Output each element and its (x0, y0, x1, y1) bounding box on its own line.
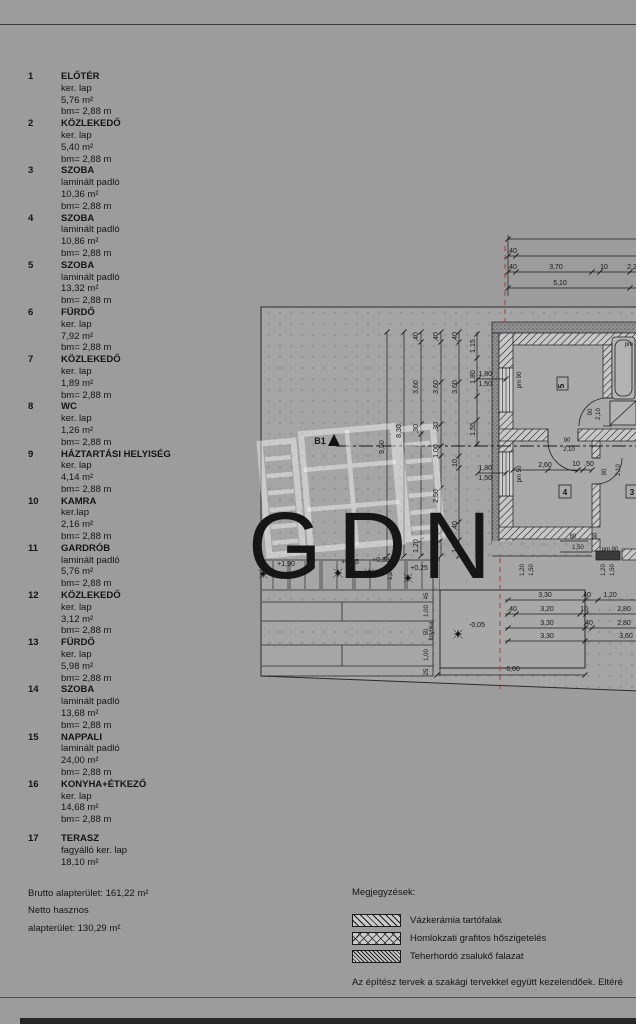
dim-label: 3,60 (413, 380, 420, 394)
room-height: bm= 2,88 m (61, 295, 253, 307)
room-name: HÁZTARTÁSI HELYISÉG (61, 449, 253, 461)
dim-label: pm (625, 342, 633, 348)
drawing-page: { "page": { "bottom_note": "Az építész t… (0, 0, 636, 1024)
dim-label: 4 (563, 488, 568, 497)
room-number: 5 (28, 260, 33, 272)
room-entry: 14 SZOBA laminált padló 13,68 m² bm= 2,8… (28, 684, 253, 731)
dim-label: ,40 (452, 521, 459, 531)
room-floor-type: laminált padló (61, 272, 253, 284)
wall-lower-hatch (622, 549, 636, 560)
room-number: 10 (28, 496, 39, 508)
dim-label: 10 (452, 459, 459, 467)
dim-label: 1,50 (478, 381, 492, 388)
room-floor-type: ker.lap (61, 507, 253, 519)
room-name: WC (61, 401, 253, 413)
room-entry: 4 SZOBA laminált padló 10,86 m² bm= 2,88… (28, 213, 253, 260)
room-entry: 11 GARDRÓB laminált padló 5,76 m² bm= 2,… (28, 543, 253, 590)
room-height: bm= 2,88 m (61, 437, 253, 449)
room-floor-type: laminált padló (61, 555, 253, 567)
disclaimer-note: Az építész tervek a szakági tervekkel eg… (352, 977, 623, 988)
spot-elevation-icon (365, 569, 374, 578)
dim-label: 50 (424, 628, 430, 635)
room-floor-type: ker. lap (61, 130, 253, 142)
wall-left-a (499, 333, 513, 368)
dim-label: 1,20 (520, 564, 526, 576)
dim-label: 3,30 (540, 620, 554, 627)
legend-row: Homlokzati grafitos hőszigetelés (352, 929, 546, 947)
dim-label: 8,30 (396, 424, 403, 438)
wall-mid-a (499, 429, 548, 441)
dim-label: ,30 (433, 422, 440, 432)
dim-label: 90 (593, 532, 599, 539)
net-area-label: Netto hasznos (28, 902, 148, 919)
legend-label: Homlokzati grafitos hőszigetelés (410, 933, 546, 944)
dim-label: 3,60 (433, 380, 440, 394)
room-name: GARDRÓB (61, 543, 253, 555)
dim-label: ,40 (583, 620, 593, 627)
dim-label: B1 (314, 436, 326, 446)
dim-label: +1,90 (277, 561, 295, 568)
room-name: SZOBA (61, 260, 253, 272)
dim-label: 2,80 (617, 620, 631, 627)
watermark-text: GDN (250, 493, 507, 599)
legend-label: Teherhordó zsalukő falazat (410, 951, 524, 962)
room-entry: 15 NAPPALI laminált padló 24,00 m² bm= 2… (28, 732, 253, 779)
room-entry: 3 SZOBA laminált padló 10,36 m² bm= 2,88… (28, 165, 253, 212)
dim-label: 10 (580, 606, 588, 613)
spot-elevation-icon (404, 574, 413, 583)
room-entry: 7 KÖZLEKEDŐ ker. lap 1,89 m² bm= 2,88 m (28, 354, 253, 401)
room-number: 15 (28, 732, 39, 744)
dim-label: 1,20 (603, 592, 617, 599)
dim-label: ,50 (584, 461, 594, 468)
dim-label: ,40 (433, 521, 440, 531)
dim-label: ,40 (452, 332, 459, 342)
dim-label: 2,2 (627, 264, 636, 271)
dim-label: +0,85 (341, 559, 359, 566)
dim-label: 10 (600, 264, 608, 271)
room-floor-type: fagyálló ker. lap (61, 845, 253, 857)
room-entry: 12 KÖZLEKEDŐ ker. lap 3,12 m² bm= 2,88 m (28, 590, 253, 637)
room-number: 8 (28, 401, 33, 413)
hatch-swatch-icon (352, 914, 401, 927)
dim-label: 3,60 (452, 380, 459, 394)
dim-label: 90 (588, 408, 594, 415)
room-area: 13,68 m² (61, 708, 253, 720)
room-area: 5,40 m² (61, 142, 253, 154)
insulation-top (492, 322, 636, 333)
dim-label: ,40 (413, 332, 420, 342)
room-area: 1,89 m² (61, 378, 253, 390)
dim-label: 1,80 (470, 370, 477, 384)
dim-label: 2,10 (563, 447, 575, 453)
notes-block: Megjegyzések: Vázkerámia tartófalak Homl… (352, 887, 546, 965)
dim-label: ,30 (413, 424, 420, 434)
room-height: bm= 2,88 m (61, 106, 253, 118)
dim-label: 1,15 (470, 339, 477, 353)
room-name: KÖZLEKEDŐ (61, 118, 253, 130)
dim-label: 3 (630, 488, 635, 497)
room-height: bm= 2,88 m (61, 578, 253, 590)
room-schedule: 1 ELŐTÉR ker. lap 5,76 m² bm= 2,88 m 2 K… (28, 71, 253, 826)
hatch-swatch-icon (352, 932, 401, 945)
room-area: 5,76 m² (61, 95, 253, 107)
terrace (440, 590, 585, 668)
dim-label: 1,20 (413, 539, 420, 553)
dim-label: 6,00 (506, 666, 520, 673)
gross-area: Brutto alapterület: 161,22 m² (28, 885, 148, 902)
dim-label: 2,10 (596, 408, 602, 420)
room-area: 2,16 m² (61, 519, 253, 531)
room-name: NAPPALI (61, 732, 253, 744)
room-area: 10,86 m² (61, 236, 253, 248)
room-name: KÖZLEKEDŐ (61, 354, 253, 366)
spot-elevation-icon (259, 570, 268, 579)
legend-row: Teherhordó zsalukő falazat (352, 947, 546, 965)
footer-bar (20, 1018, 636, 1024)
room-height: bm= 2,88 m (61, 767, 253, 779)
room-entry: 1 ELŐTÉR ker. lap 5,76 m² bm= 2,88 m (28, 71, 253, 118)
room-height: bm= 2,88 m (61, 201, 253, 213)
wall-partition (603, 345, 612, 398)
bathroom-fixtures (610, 337, 636, 425)
dim-label: ,40 (507, 248, 517, 255)
room-floor-type: ker. lap (61, 791, 253, 803)
dim-label: 5,10 (553, 280, 567, 287)
room-area: 3,12 m² (61, 614, 253, 626)
dim-label: 3,30 (538, 592, 552, 599)
room-height: bm= 2,88 m (61, 531, 253, 543)
dim-label: pm 90 (602, 547, 619, 553)
room-number: 16 (28, 779, 39, 791)
legend-label: Vázkerámia tartófalak (410, 915, 502, 926)
dim-label: +0,55 (372, 557, 390, 564)
room-name: KÖZLEKEDŐ (61, 590, 253, 602)
room-height: bm= 2,88 m (61, 720, 253, 732)
dim-label: +0,25 (410, 565, 428, 572)
room-number: 11 (28, 543, 38, 555)
dim-label: 1,20 (433, 539, 440, 553)
room-entry: 8 WC ker. lap 1,26 m² bm= 2,88 m (28, 401, 253, 448)
room-height: bm= 2,88 m (61, 625, 253, 637)
room-number: 17 (28, 833, 39, 845)
dim-label: ,40 (581, 592, 591, 599)
dim-label: ,40 (433, 332, 440, 342)
room-height: bm= 2,88 m (61, 390, 253, 402)
wall-legend: Vázkerámia tartófalak Homlokzati grafito… (352, 911, 546, 965)
room-number: 9 (28, 449, 33, 461)
dim-label: 1,80 (478, 371, 492, 378)
legend-row: Vázkerámia tartófalak (352, 911, 546, 929)
dim-label: 2,10 (616, 464, 622, 476)
room-height: bm= 2,88 m (61, 342, 253, 354)
room-area: 4,14 m² (61, 472, 253, 484)
room-number: 14 (28, 684, 39, 696)
dim-label: 1,00 (433, 444, 440, 458)
dim-label: 10 (572, 461, 580, 468)
room-name: SZOBA (61, 213, 253, 225)
dim-label: 1,00 (424, 605, 430, 617)
room-area: 5,76 m² (61, 566, 253, 578)
dim-label: 3,20 (540, 606, 554, 613)
room-number: 3 (28, 165, 33, 177)
dim-label: 1,50 (572, 545, 584, 551)
dim-label: 1,50 (529, 564, 535, 576)
header-rule (0, 24, 636, 25)
spot-elevation-icon (454, 630, 463, 639)
room-name: TERASZ (61, 833, 253, 845)
dim-label: 90 (602, 468, 608, 475)
spot-elevation-icon (334, 569, 343, 578)
room-name: SZOBA (61, 684, 253, 696)
net-area-value: alapterület: 130,29 m² (28, 920, 148, 937)
area-totals: Brutto alapterület: 161,22 m² Netto hasz… (28, 885, 148, 937)
room-name: KONYHA+ÉTKEZŐ (61, 779, 253, 791)
room-height: bm= 2,88 m (61, 484, 253, 496)
dim-label: 1,50 (610, 564, 616, 576)
room-height: bm= 2,88 m (61, 248, 253, 260)
dim-label: pm 50 (517, 465, 523, 482)
room-name: SZOBA (61, 165, 253, 177)
dim-label: ,40 (507, 606, 517, 613)
room-entry: 9 HÁZTARTÁSI HELYISÉG ker. lap 4,14 m² b… (28, 449, 253, 496)
dim-label: 2,50 (433, 489, 440, 503)
dim-label: 1,20 (452, 539, 459, 553)
dim-label: 2,80 (617, 606, 631, 613)
wall-room4-right-b (592, 484, 600, 527)
room-entry: 6 FÜRDŐ ker. lap 7,92 m² bm= 2,88 m (28, 307, 253, 354)
room-area: 1,26 m² (61, 425, 253, 437)
room-area: 14,68 m² (61, 802, 253, 814)
dim-label: 3,70 (549, 264, 563, 271)
dim-label: 1,80 (478, 465, 492, 472)
room-entry: 13 FÜRDŐ ker. lap 5,98 m² bm= 2,88 m (28, 637, 253, 684)
wall-room4-bottom (499, 527, 592, 539)
room-floor-type: ker. lap (61, 460, 253, 472)
dim-label: 9,50 (379, 440, 386, 454)
wall-lower-right (592, 539, 600, 551)
floor-plan: GDN ,40,403,70102,25,109,508,30,403,60,3… (250, 230, 636, 700)
dim-label: 1,55 (470, 422, 477, 436)
room-height: bm= 2,88 m (61, 673, 253, 685)
room-entry: 10 KAMRA ker.lap 2,16 m² bm= 2,88 m (28, 496, 253, 543)
room-floor-type: laminált padló (61, 177, 253, 189)
dim-label: 25 (424, 668, 430, 675)
notes-title: Megjegyzések: (352, 887, 546, 898)
room-area: 5,98 m² (61, 661, 253, 673)
room-name: ELŐTÉR (61, 71, 253, 83)
dim-label: pm 90 (517, 371, 523, 388)
room-name: FÜRDŐ (61, 307, 253, 319)
wall-room4-right-a (592, 441, 600, 458)
room-height: bm= 2,88 m (61, 814, 253, 826)
dim-label: 2,60 (538, 462, 552, 469)
room-number: 4 (28, 213, 33, 225)
dim-label: 90 (564, 438, 571, 444)
dim-label: 1,00 (424, 649, 430, 661)
room-area: 13,32 m² (61, 283, 253, 295)
room-height: bm= 2,88 m (61, 154, 253, 166)
room-entry: 16 KONYHA+ÉTKEZŐ ker. lap 14,68 m² bm= 2… (28, 779, 253, 826)
window-room5 (499, 368, 513, 412)
room-entry: 5 SZOBA laminált padló 13,32 m² bm= 2,88… (28, 260, 253, 307)
room-floor-type: ker. lap (61, 366, 253, 378)
room-floor-type: ker. lap (61, 649, 253, 661)
room-name: KAMRA (61, 496, 253, 508)
room-schedule-terrace: 17 TERASZ fagyálló ker. lap 18,10 m² (28, 833, 253, 868)
window-room4 (499, 452, 513, 496)
dim-label: 80 (570, 534, 577, 540)
dim-label: ,40 (507, 264, 517, 271)
room-floor-type: laminált padló (61, 224, 253, 236)
hatch-swatch-icon (352, 950, 401, 963)
room-floor-type: ker. lap (61, 413, 253, 425)
room-floor-type: ker. lap (61, 602, 253, 614)
dim-label: 1,50 (478, 475, 492, 482)
room-number: 12 (28, 590, 39, 602)
dim-label: 5 (557, 383, 566, 388)
wall-mid-b (578, 429, 636, 441)
room-number: 7 (28, 354, 33, 366)
room-number: 2 (28, 118, 33, 130)
dim-label: 1,20 (601, 564, 607, 576)
room-name: FÜRDŐ (61, 637, 253, 649)
dim-label: 45 (424, 592, 430, 599)
room-floor-type: laminált padló (61, 696, 253, 708)
room-number: 6 (28, 307, 33, 319)
dim-label: 3,60 (619, 633, 633, 640)
room-floor-type: ker. lap (61, 83, 253, 95)
room-entry: 17 TERASZ fagyálló ker. lap 18,10 m² (28, 833, 253, 868)
dim-label: -0,05 (469, 622, 485, 629)
room-entry: 2 KÖZLEKEDŐ ker. lap 5,40 m² bm= 2,88 m (28, 118, 253, 165)
dim-label: 3,30 (540, 633, 554, 640)
room-number: 1 (28, 71, 33, 83)
footer-rule (0, 997, 636, 998)
room-area: 10,36 m² (61, 189, 253, 201)
room-number: 13 (28, 637, 39, 649)
room-area: 18,10 m² (61, 857, 253, 869)
dim-label: 1,20 (388, 568, 394, 580)
room-floor-type: laminált padló (61, 743, 253, 755)
room-area: 7,92 m² (61, 331, 253, 343)
room-area: 24,00 m² (61, 755, 253, 767)
room-floor-type: ker. lap (61, 319, 253, 331)
